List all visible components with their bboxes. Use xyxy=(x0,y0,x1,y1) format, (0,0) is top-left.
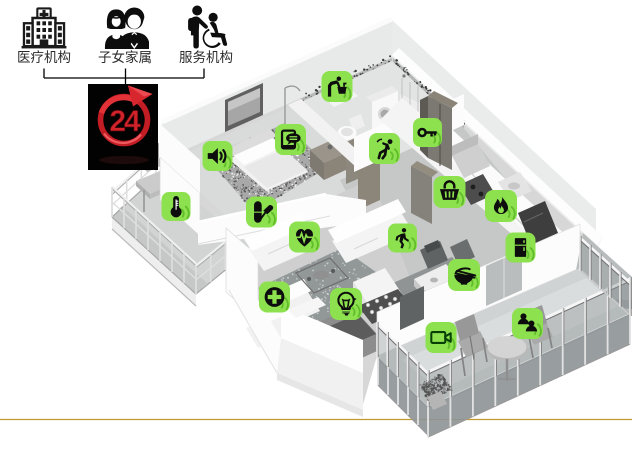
svg-text:医疗机构: 医疗机构 xyxy=(17,50,71,65)
svg-text:子女家属: 子女家属 xyxy=(98,49,152,65)
svg-text:24: 24 xyxy=(109,105,141,138)
svg-text:服务机构: 服务机构 xyxy=(179,50,233,65)
